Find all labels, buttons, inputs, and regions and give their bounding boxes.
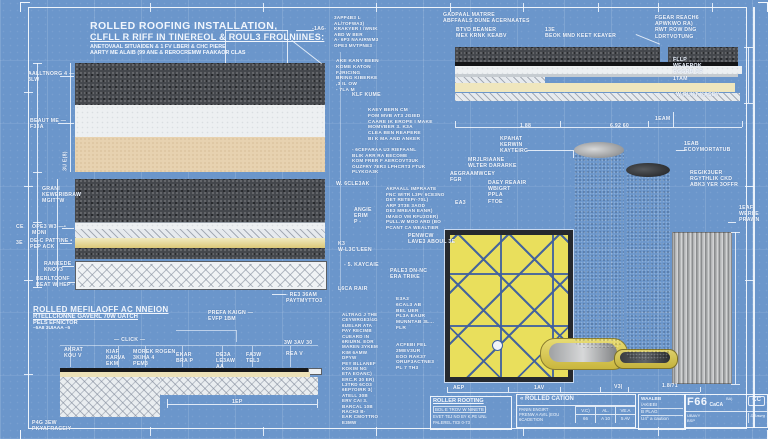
layer-cap-sheet [75,63,325,105]
titleblock-name-line4: PALEREL TIDI 0-73 [433,420,509,425]
approval-line2: BSP [687,418,748,423]
annotation-label: - 6CEFARAA U3 RIEFAANL BLIK ARR RA BECOM… [352,147,425,175]
gray-roll-top-cap [574,142,624,158]
dimension-line [24,186,33,187]
dimension-line [728,222,736,223]
annotation-label: FA3W TEL3 [246,352,261,364]
dimension-line [37,63,38,288]
annotation-label: 13E BEOK MND KEET KEAYER [545,27,616,39]
layer-cap-sheet-2 [455,47,660,62]
dimension-line [745,186,754,187]
sheet-number-suffix: CaCA [709,402,723,408]
annotation-label: KLF KUME [352,92,381,98]
section2-title-block: ROLLED MEFILAOFF AC NNEION RTELLCIONNE G… [33,305,169,331]
slab-end-cap [308,368,322,375]
annotation-label: — CLICK — [114,337,145,343]
titleblock-number: F66 CaCA BA) CC UBAVY BSP DRawrg [684,394,768,428]
dimension-line [60,345,318,346]
annotation-label: PALE3 DN-NC ERA TRIKE [390,268,427,280]
dimension-line [455,127,742,128]
corner-mark [758,430,768,439]
dimension-line [560,387,561,392]
annotation-label: -1A6- [312,26,326,32]
titleblock-name-line2: BOL E TROV W NINETB [433,406,486,414]
scale-line2: /AKIEBI [641,402,683,408]
dimension-line [263,427,264,436]
layer-base-sheet [75,105,325,137]
dimension-line [658,3,659,12]
blueprint-canvas: ROLLED ROOFING INSTALLATION, CLFLL R RIF… [0,0,768,439]
dimension-line [508,387,509,392]
dimension-line [523,427,524,436]
annotation-label: GADPAAL MATRRE ABFFAALS DUNE ACERNAATES [443,12,530,24]
dimension-line [24,92,33,93]
cert-mark: CC [748,396,765,406]
annotation-label: DAEY REAAIR WBIGRT PPLA FTOE [488,180,526,205]
schedule-row-labels: PANIN ENGIRT PRENW A AVIL (EOU 6CADETION [517,406,575,424]
annotation-label: KPAHAT KERWIN KAYTEIRG [500,136,528,155]
dimension-line [252,346,253,367]
annotation-label: 3U E(8) [63,151,69,171]
sheet-number: F66 [687,396,707,410]
schedule-header: « ROLLED CATION [517,395,635,406]
layer-insulation [75,229,325,238]
dimension-line [744,47,753,48]
annotation-label: P4G 3EW PKYAFRACEIY [32,420,71,432]
schedule-val1: 66 [575,414,595,423]
dimension-line [272,294,286,295]
annotation-label: AKRAT KOU V [64,347,83,359]
annotation-label: E3A3 6CAL3 AB BEL UER PL3A EAUR MUNNTAB … [396,297,434,332]
drawn-by: DRawrg [748,413,765,423]
layer-cream-2 [455,83,735,92]
dimension-line [523,3,524,12]
slab-deck-shallow [160,377,318,395]
titleblock-schedule: « ROLLED CATION PANIN ENGIRT PRENW A AVI… [516,394,636,428]
dimension-line [598,3,599,12]
schedule-col2: AL. [595,406,615,415]
dimension-line [676,150,685,151]
dimension-line [225,30,226,63]
dimension-line [287,30,288,63]
annotation-label: KAEY BERN CM FOM MVB AT3 JGIED CAARE IK … [368,108,433,143]
dimension-line [712,3,713,12]
dimension-line [450,3,451,12]
annotation-label: ACFEBI FEL 2MEV3UR EOO RAK37 ORUF3ACTNE3… [396,343,434,372]
gray-roofing-roll [574,150,624,348]
sheet-title-block: ROLLED ROOFING INSTALLATION, CLFLL R RIF… [90,20,324,56]
dimension-line [731,384,740,385]
annotation-label: 1EAB ECOYMORTATUB [684,141,731,153]
corrugated-panel [672,232,732,384]
page-title: ROLLED ROOFING INSTALLATION, [90,20,324,32]
annotation-label: BTVD BEANER MEX KRNK KEABV [456,27,507,39]
schedule-val3: 5 AV [615,414,635,423]
dimension-line [145,346,146,367]
scale-line4: U4° a caution [641,415,683,422]
dimension-line [735,232,736,384]
dimension-line [731,232,740,233]
dimension-line [33,287,42,288]
dimension-line [118,346,119,367]
dark-roll-top-cap [626,163,670,177]
annotation-label: W-RUKT KASEY [676,92,719,98]
annotation-label: W. 6CLE3AK [336,181,370,187]
annotation-label: KIAF KARVA EKM [106,349,125,368]
titleblock-drawing-name: ROLLER ROOTING BOL E TROV W NINETB EVET … [430,396,512,430]
mat-fastener-detail [492,340,503,351]
schedule-row3: 6CADETION [519,417,573,422]
layer-membrane [75,179,325,222]
annotation-label: EKAR BRA P [176,352,193,364]
annotation-label: EA3 [455,200,466,206]
annotation-label: - RE3 36AM PAYTMYTTO3 [286,292,322,304]
slab-deck-deep [60,377,160,417]
dimension-line [57,179,58,287]
dimension-line [150,3,151,12]
annotation-label: AKE KANY BEEN KOME KATON FJRICING BRING … [336,59,379,94]
annotation-label: 1.8/71 [662,383,678,389]
annotation-label: REGIK3UER RGYTHLIK CKD ABK3 YER 3OFFR [690,170,738,189]
schedule-col1: V.C) [575,406,595,415]
dimension-line [60,76,74,77]
schedule-col3: VE.A [615,406,635,415]
layer-deck [75,261,327,290]
dimension-line [573,150,574,158]
annotation-label: - 5. KAYCAIE [344,262,379,268]
title-note-2: AARTY ME ALAIB (99 ANE & REROCREMW FAAKA… [90,50,324,56]
dimension-line [673,112,674,127]
dimension-line [70,346,71,367]
annotation-label: REA V [286,351,303,357]
page-subtitle: CLFLL R RIFF IN TINEREOL & ROUL3 FROLNII… [90,32,324,42]
annotation-label: PENWCW LAVE3 ABOUL 3E [408,233,455,245]
layer-vapor-barrier [75,248,325,259]
annotation-label: AEP [453,385,464,391]
dimension-line [167,399,168,408]
dimension-line [340,52,341,292]
annotation-label: DE3A LE3AW AA [216,352,235,371]
dimension-line [263,3,264,12]
annotation-label: 3E [16,240,23,246]
dimension-line [62,228,74,229]
annotation-label: 3APP4B3 L AL/7OFWA3) KRAKYER I /WNIK ABD… [334,15,379,48]
section2-title: ROLLED MEFILAOFF AC NNEION [33,305,169,314]
dimension-line [742,121,743,127]
dimension-line [176,330,236,331]
dimension-line [167,404,317,405]
dimension-line [33,172,42,173]
dimension-line [376,427,377,436]
dimension-line [455,121,456,127]
annotation-label: BEAUT ME — F33A [30,118,66,130]
dimension-line [376,3,377,12]
annotation-label: MRJLRIAANE WLTER DARARKE [468,157,517,169]
dimension-line [447,387,448,392]
corner-mark [758,2,768,12]
annotation-label: AALLTNORG 4 — 3LW [28,71,74,83]
dimension-line [182,346,183,367]
annotation-label: 1EAM [655,116,670,122]
section2-sub3: –5A8 3UIAAA –5 [33,326,169,331]
layer-underlayment [75,137,325,172]
dimension-line [222,346,223,367]
dimension-line [236,330,237,342]
dimension-line [33,222,42,223]
titleblock-scale: WAALBB /AKIEBI B PLAG U4° a caution [638,394,686,430]
layer-adhesive [75,238,325,248]
dimension-line [447,392,700,393]
dimension-line [24,374,33,375]
dimension-line [60,243,72,244]
annotation-label: GRANI KEWERIBRAW MGITTW [42,186,81,205]
corner-mark [20,430,30,439]
annotation-label: K3 W-L3C'LEEN [338,241,372,253]
dimension-line [290,346,291,367]
dimension-line [744,103,753,104]
dark-roofing-roll [626,170,670,360]
titleblock-name-line1: ROLLER ROOTING [433,398,509,405]
dimension-line [748,47,749,103]
annotation-label: 1AV [534,385,544,391]
dimension-line [658,427,659,436]
dimension-line [600,387,601,392]
dimension-line [296,30,314,31]
annotation-label: AKPAALL IMPRAATE FNC WITR L3Pr 6CE3NO DE… [386,186,445,230]
annotation-label: 1EAF WERLE PRAWN [739,205,760,224]
dimension-line [62,266,74,267]
dimension-line [24,280,33,281]
annotation-label: CE [16,224,24,230]
dimension-line [745,280,754,281]
annotation-label: FGEAR REACH6 APWKWO RA) RWT ROW DNG LDRT… [655,15,699,40]
dimension-line [528,150,573,151]
annotation-label: L6CA RAIR [338,286,368,292]
annotation-label: ALTRAG J THE CEYWRGE3/4G 6UELAR ATA PAY … [342,312,378,425]
dimension-line [150,427,151,436]
annotation-label: PREFA KAIGN — EVFP 1BM [208,310,253,322]
sheet-rev: BA) [726,397,732,402]
dimension-line [560,121,561,127]
schedule-val2: A 10 [595,414,615,423]
corner-mark [20,2,30,12]
dimension-line [33,63,42,64]
annotation-label: ANGIE ERIM P - [354,207,372,226]
dimension-line [628,387,629,392]
dimension-line [70,63,71,172]
dimension-line [648,121,649,127]
schedule-grid: V.C) AL. VE.A 66 A 10 5 AV [575,406,635,424]
dimension-line [317,399,318,408]
dimension-line [225,30,288,31]
dimension-line [68,282,75,283]
dimension-line [58,123,74,124]
annotation-label: MOREK ROGEN 3KIHA 4 PEM3 [133,349,176,368]
dimension-line [700,387,701,392]
scale-line3: B PLAG [641,408,683,415]
annotation-label: FLLP WEAEROK RGGRB CP 1TAM [673,57,703,82]
annotation-label: V3| [614,384,623,390]
